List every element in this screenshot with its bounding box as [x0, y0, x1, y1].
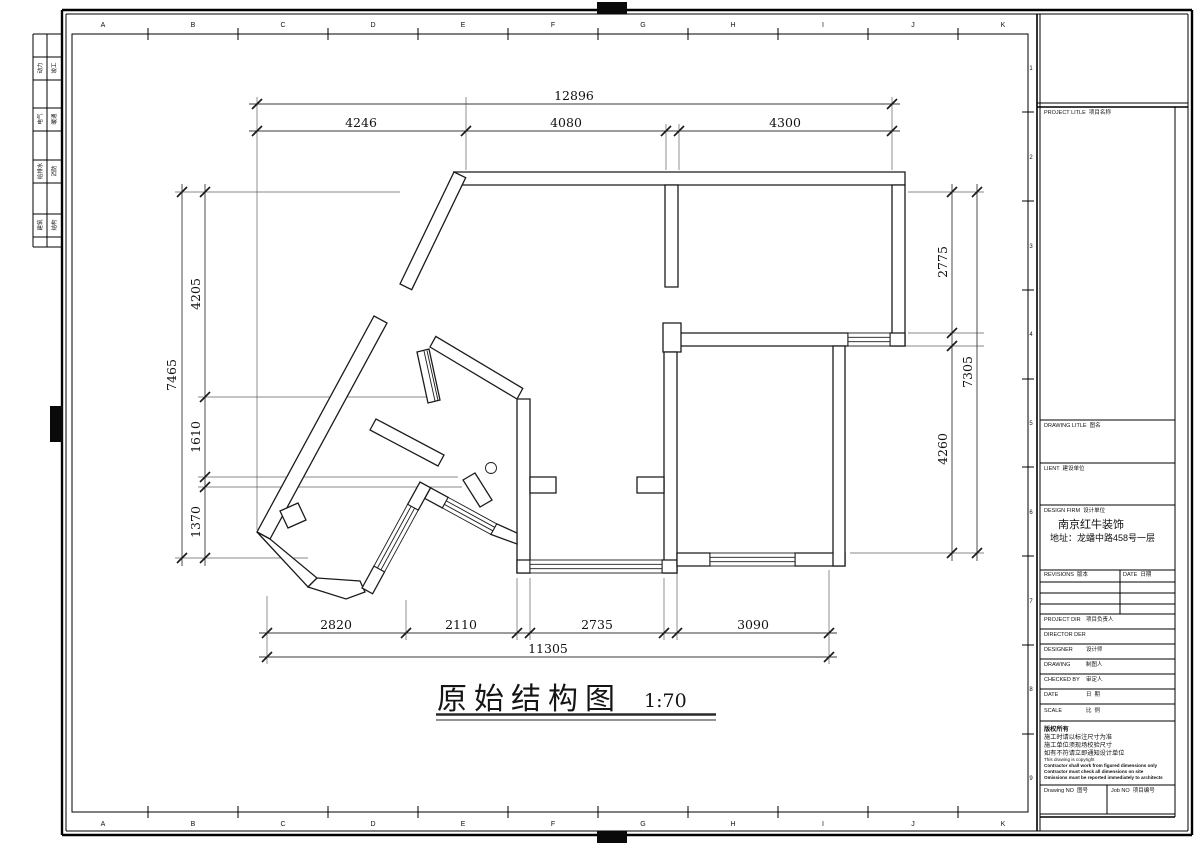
svg-text:C: C	[280, 22, 285, 29]
svg-text:8: 8	[1029, 687, 1033, 693]
note-en-1: Contractor shall work from figured dimen…	[1044, 763, 1157, 768]
dim-bottom-total: 11305	[528, 641, 568, 656]
titleblock-drawing-title: DRAWING LITLE 图名	[1044, 423, 1101, 430]
wall-diag-stub-c	[463, 473, 492, 507]
titleblock-project-title: PROJECT LITLE 项目名称	[1044, 110, 1111, 117]
cell-drawing-no: Drawing NO 图号	[1044, 788, 1088, 795]
row-checked-cn: 审定人	[1086, 677, 1103, 684]
row-scale-cn: 比 例	[1086, 708, 1100, 715]
note-en-2: Contractor must check all dimensions on …	[1044, 769, 1143, 774]
dim-left-seg2: 1610	[188, 421, 203, 453]
dim-bottom-seg1: 2820	[320, 617, 352, 632]
svg-text:A: A	[101, 821, 106, 828]
wall-right-upper	[892, 185, 905, 346]
plan-title: 原始结构图	[437, 682, 622, 717]
plan-title-group: 原始结构图 1:70	[436, 682, 716, 720]
row-designer-en: DESIGNER	[1044, 647, 1073, 654]
row-designer-cn: 设计师	[1086, 647, 1103, 654]
dim-top-seg1: 4246	[345, 115, 377, 130]
svg-text:C: C	[280, 821, 285, 828]
tab-discipline-3a: 给排水	[36, 163, 44, 180]
svg-text:H: H	[730, 22, 735, 29]
design-firm-name: 南京红牛装饰	[1058, 516, 1124, 532]
titleblock-design-firm: DESIGN FIRM 设计单位	[1044, 508, 1105, 515]
svg-text:5: 5	[1029, 421, 1033, 427]
dim-right-total: 7305	[960, 356, 975, 388]
tab-discipline-2a: 电气	[36, 113, 44, 124]
titleblock-revisions: REVISIONS 版本	[1044, 572, 1088, 579]
wall-diag-partition	[430, 336, 523, 399]
svg-text:J: J	[911, 22, 915, 29]
tab-discipline-2b: 暖通	[50, 113, 58, 124]
svg-text:A: A	[101, 22, 106, 29]
svg-text:1: 1	[1029, 66, 1033, 72]
row-scale-en: SCALE	[1044, 708, 1062, 715]
row-date-en: DATE	[1044, 692, 1058, 699]
note-copyright-en: This drawing is copyright	[1044, 757, 1095, 762]
svg-text:I: I	[822, 22, 824, 29]
fold-mark-bottom	[597, 831, 627, 843]
dim-top-seg3: 4300	[769, 115, 801, 130]
row-drawing-en: DRAWING	[1044, 662, 1070, 669]
svg-text:F: F	[551, 22, 555, 29]
row-checked-en: CHECKED BY	[1044, 677, 1080, 684]
svg-text:I: I	[822, 821, 824, 828]
dim-top-total: 12896	[554, 88, 594, 103]
plan-scale: 1:70	[644, 690, 687, 712]
svg-text:7: 7	[1029, 599, 1033, 605]
grid-letters-top: A B C D E F G H I J K	[101, 22, 1006, 29]
wall-top	[454, 172, 905, 185]
wall-diag-bottom	[308, 578, 365, 599]
dim-left-seg3: 1370	[188, 506, 203, 538]
tab-discipline-3b: 消防	[50, 165, 58, 176]
grid-letters-bottom: A B C D E F G H I J K	[101, 821, 1006, 828]
tab-discipline-1b: 竣工	[50, 62, 58, 73]
floor-plan-walls	[257, 172, 905, 599]
dim-left-total: 7465	[164, 359, 179, 391]
dim-left-seg1: 4205	[188, 278, 203, 310]
tab-discipline-4a: 建筑	[36, 219, 44, 230]
svg-text:D: D	[370, 22, 375, 29]
svg-text:G: G	[640, 821, 645, 828]
tab-discipline-1a: 动力	[36, 62, 44, 73]
tab-discipline-4b: 结构	[50, 219, 58, 230]
wall-partition-bottom-rooms	[664, 352, 677, 573]
fold-mark-left	[50, 406, 63, 442]
drain-point	[486, 463, 497, 474]
row-director-en: DIRECTOR DER	[1044, 632, 1086, 639]
wall-diag-top-left	[400, 172, 466, 290]
svg-text:E: E	[461, 821, 466, 828]
note-notify: 如有不符请立即通知设计单位	[1044, 748, 1124, 757]
svg-text:2: 2	[1029, 155, 1033, 161]
wall-stub-left	[530, 477, 556, 493]
svg-text:G: G	[640, 22, 645, 29]
wall-bm-left	[517, 399, 530, 573]
wall-stub-right	[637, 477, 664, 493]
svg-text:3: 3	[1029, 244, 1033, 250]
svg-text:B: B	[191, 821, 196, 828]
design-firm-address: 地址：龙蟠中路458号一层	[1050, 531, 1155, 544]
column-mid	[663, 323, 681, 352]
svg-text:K: K	[1001, 821, 1006, 828]
wall-partition-top-rooms	[665, 185, 678, 287]
dim-bottom-seg2: 2110	[445, 617, 477, 632]
row-project-dir-cn: 项目负责人	[1086, 617, 1114, 624]
svg-text:F: F	[551, 821, 555, 828]
svg-text:E: E	[461, 22, 466, 29]
svg-text:H: H	[730, 821, 735, 828]
sheet-canvas: 12896 4246 4080 4300 2820 2110 2735 3090…	[0, 0, 1200, 845]
cell-job-no: Job NO 项目编号	[1111, 788, 1155, 795]
dim-bottom-seg4: 3090	[737, 617, 769, 632]
dim-bottom-seg3: 2735	[581, 617, 613, 632]
svg-text:4: 4	[1029, 332, 1033, 338]
svg-text:6: 6	[1029, 510, 1033, 516]
row-project-dir-en: PROJECT DIR	[1044, 617, 1081, 624]
row-date-cn: 日 期	[1086, 692, 1100, 699]
svg-text:K: K	[1001, 22, 1006, 29]
drawing-sheet: 12896 4246 4080 4300 2820 2110 2735 3090…	[0, 0, 1200, 845]
wall-diag-chamfer	[257, 532, 317, 587]
note-en-3: Omissions must be reported immediately t…	[1044, 775, 1163, 780]
fold-mark-top	[597, 2, 627, 14]
dim-top-seg2: 4080	[550, 115, 582, 130]
titleblock-date-col: DATE 日期	[1123, 572, 1151, 579]
dim-right-seg2: 4260	[935, 433, 950, 465]
row-drawing-cn: 制图人	[1086, 662, 1103, 669]
dim-right-seg1: 2775	[935, 246, 950, 278]
titleblock-client: LIENT 建设单位	[1044, 466, 1085, 473]
wall-diag-stub-b	[370, 419, 444, 466]
svg-text:9: 9	[1029, 776, 1033, 782]
svg-text:D: D	[370, 821, 375, 828]
wall-diag-long	[257, 316, 387, 539]
windows	[374, 333, 890, 573]
svg-text:B: B	[191, 22, 196, 29]
grid-numbers-right: 1 2 3 4 5 6 7 8 9	[1029, 66, 1033, 782]
wall-br-right	[833, 346, 845, 566]
wall-mid-horizontal	[664, 333, 848, 346]
svg-text:J: J	[911, 821, 915, 828]
